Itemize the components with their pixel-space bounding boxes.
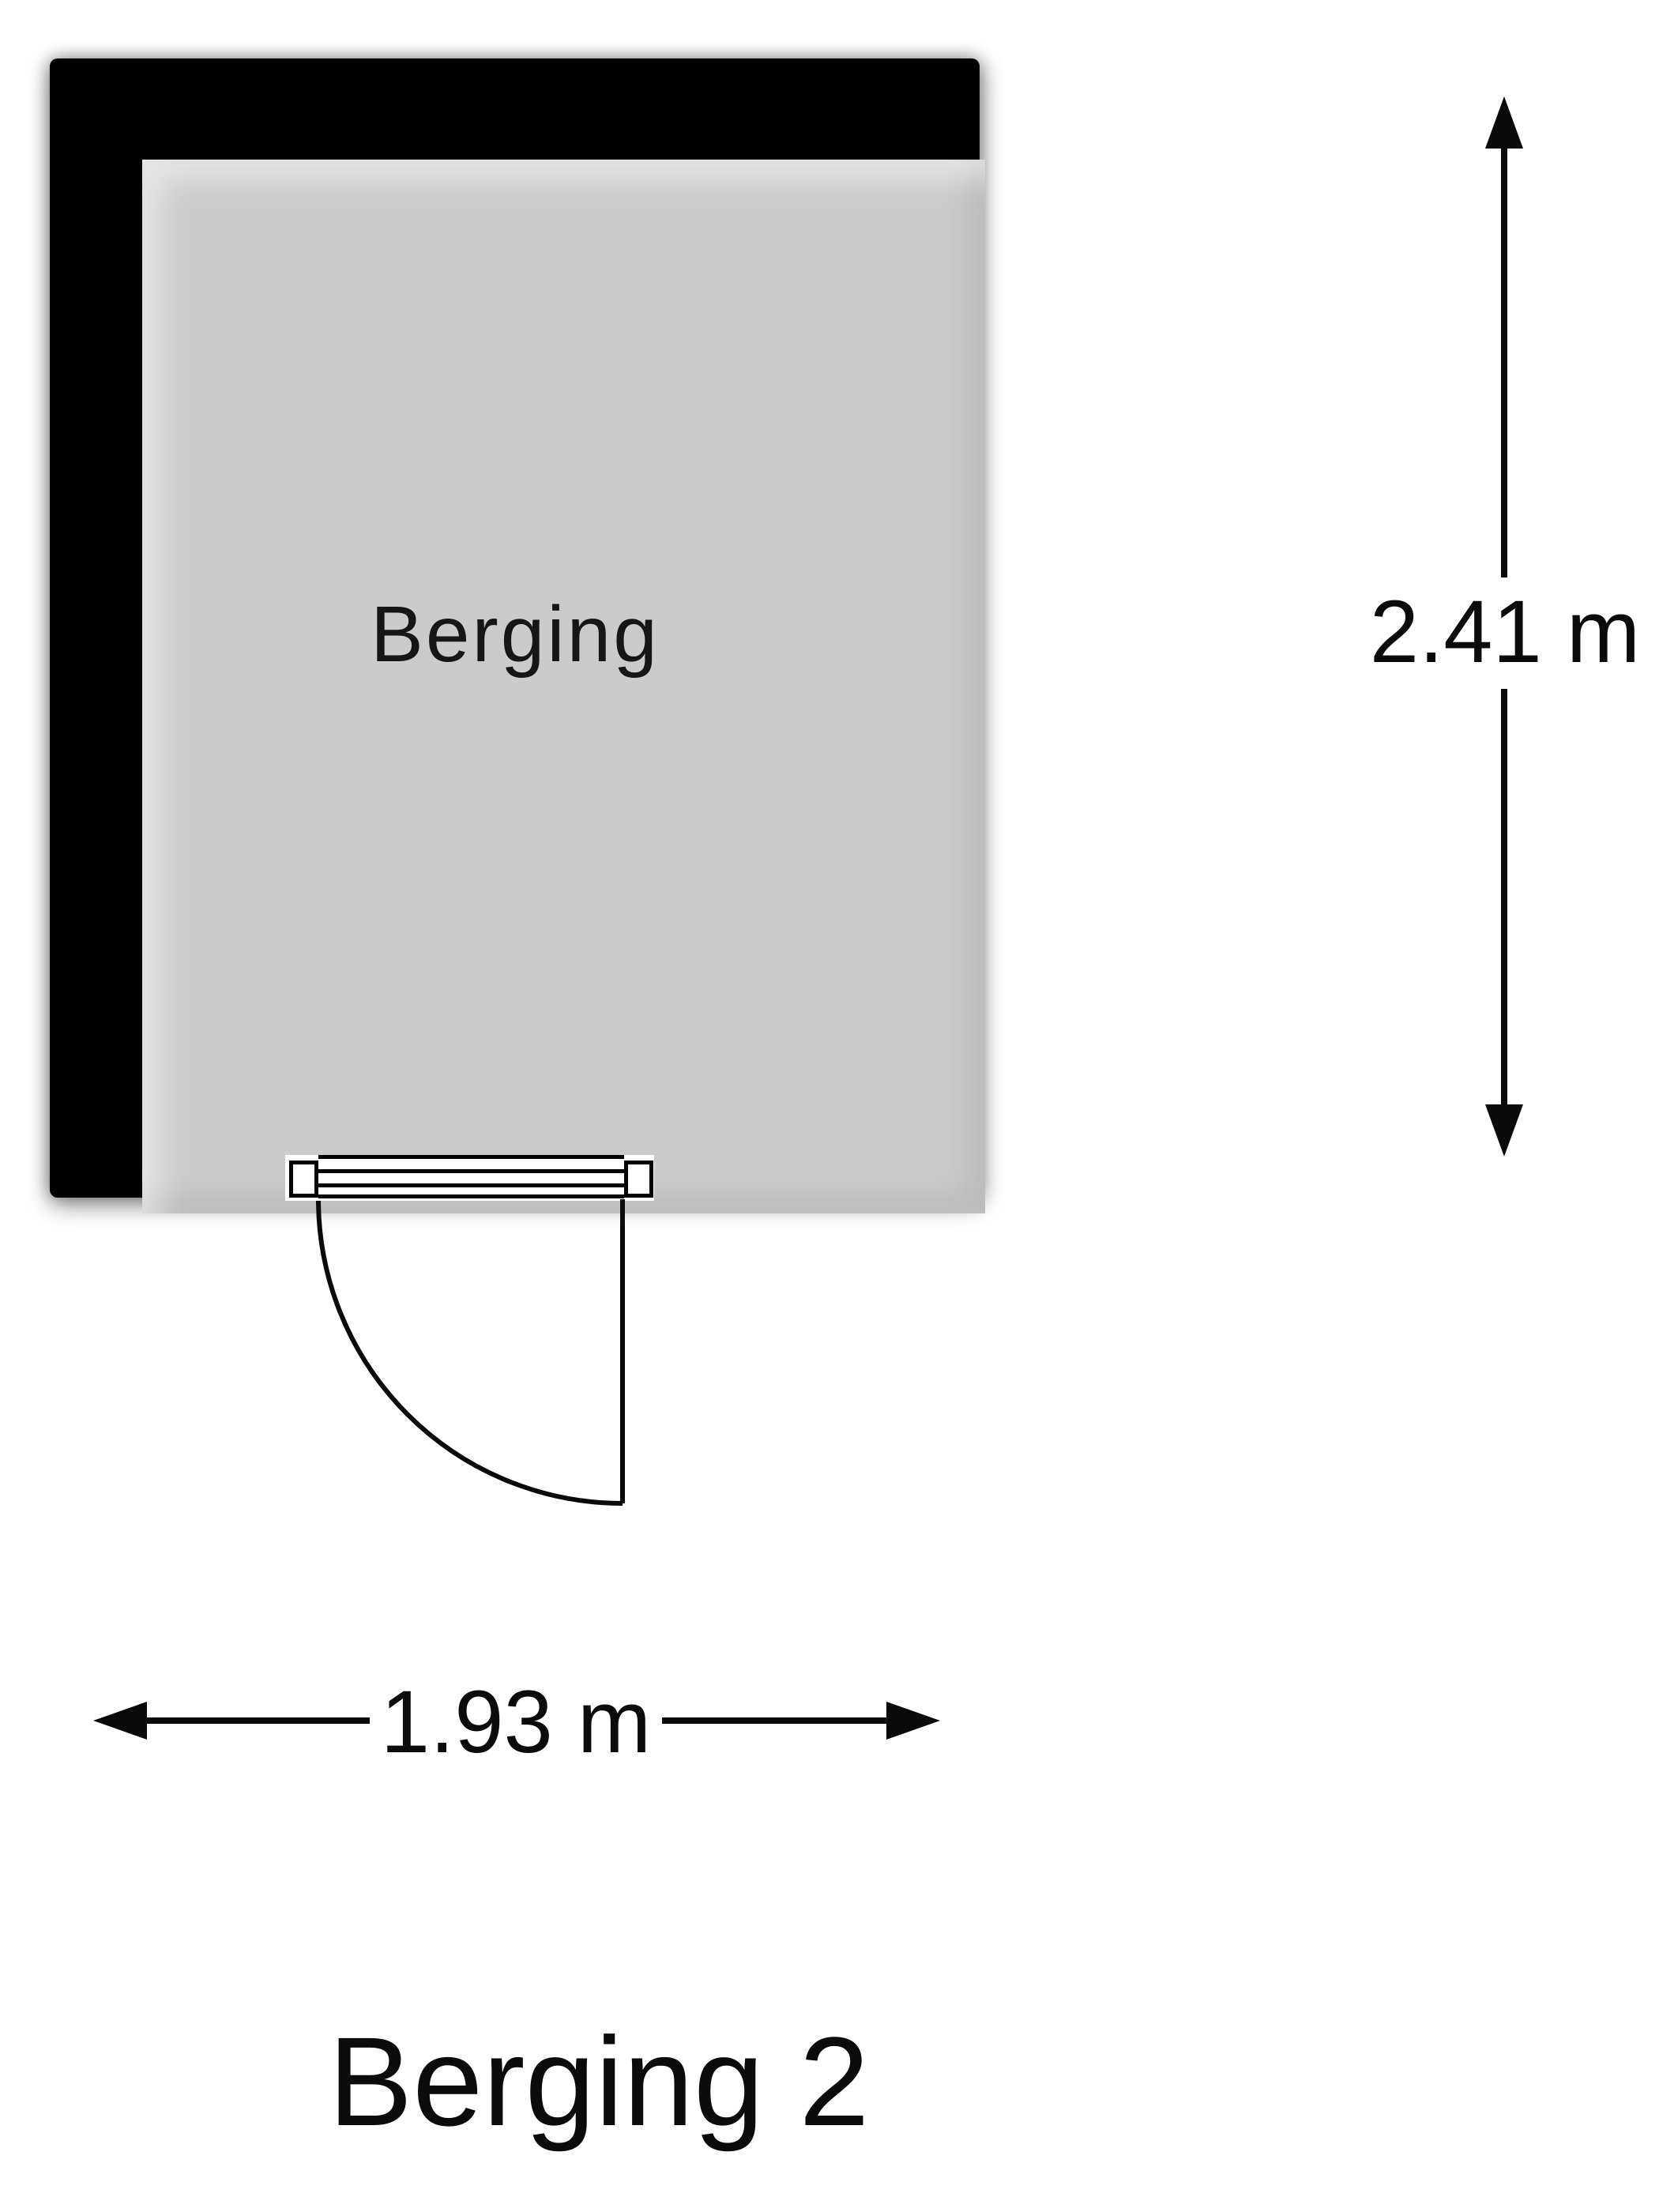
door-swing-arc (318, 1201, 623, 1503)
dim-v-arrowhead-bottom (1485, 1104, 1523, 1157)
dim-vertical-label: 2.41 m (1347, 585, 1659, 679)
dim-v-arrowhead-top (1485, 96, 1523, 149)
dim-h-arrowhead-left (93, 1702, 147, 1740)
dim-horizontal-label: 1.93 m (358, 1675, 674, 1770)
floorplan-linework (0, 0, 1659, 2212)
floorplan-title: Berging 2 (164, 2007, 1033, 2157)
floorplan-canvas: Berging 2.41 m 1.93 m Berging 2 (0, 0, 1659, 2212)
dim-h-arrowhead-right (886, 1702, 940, 1740)
